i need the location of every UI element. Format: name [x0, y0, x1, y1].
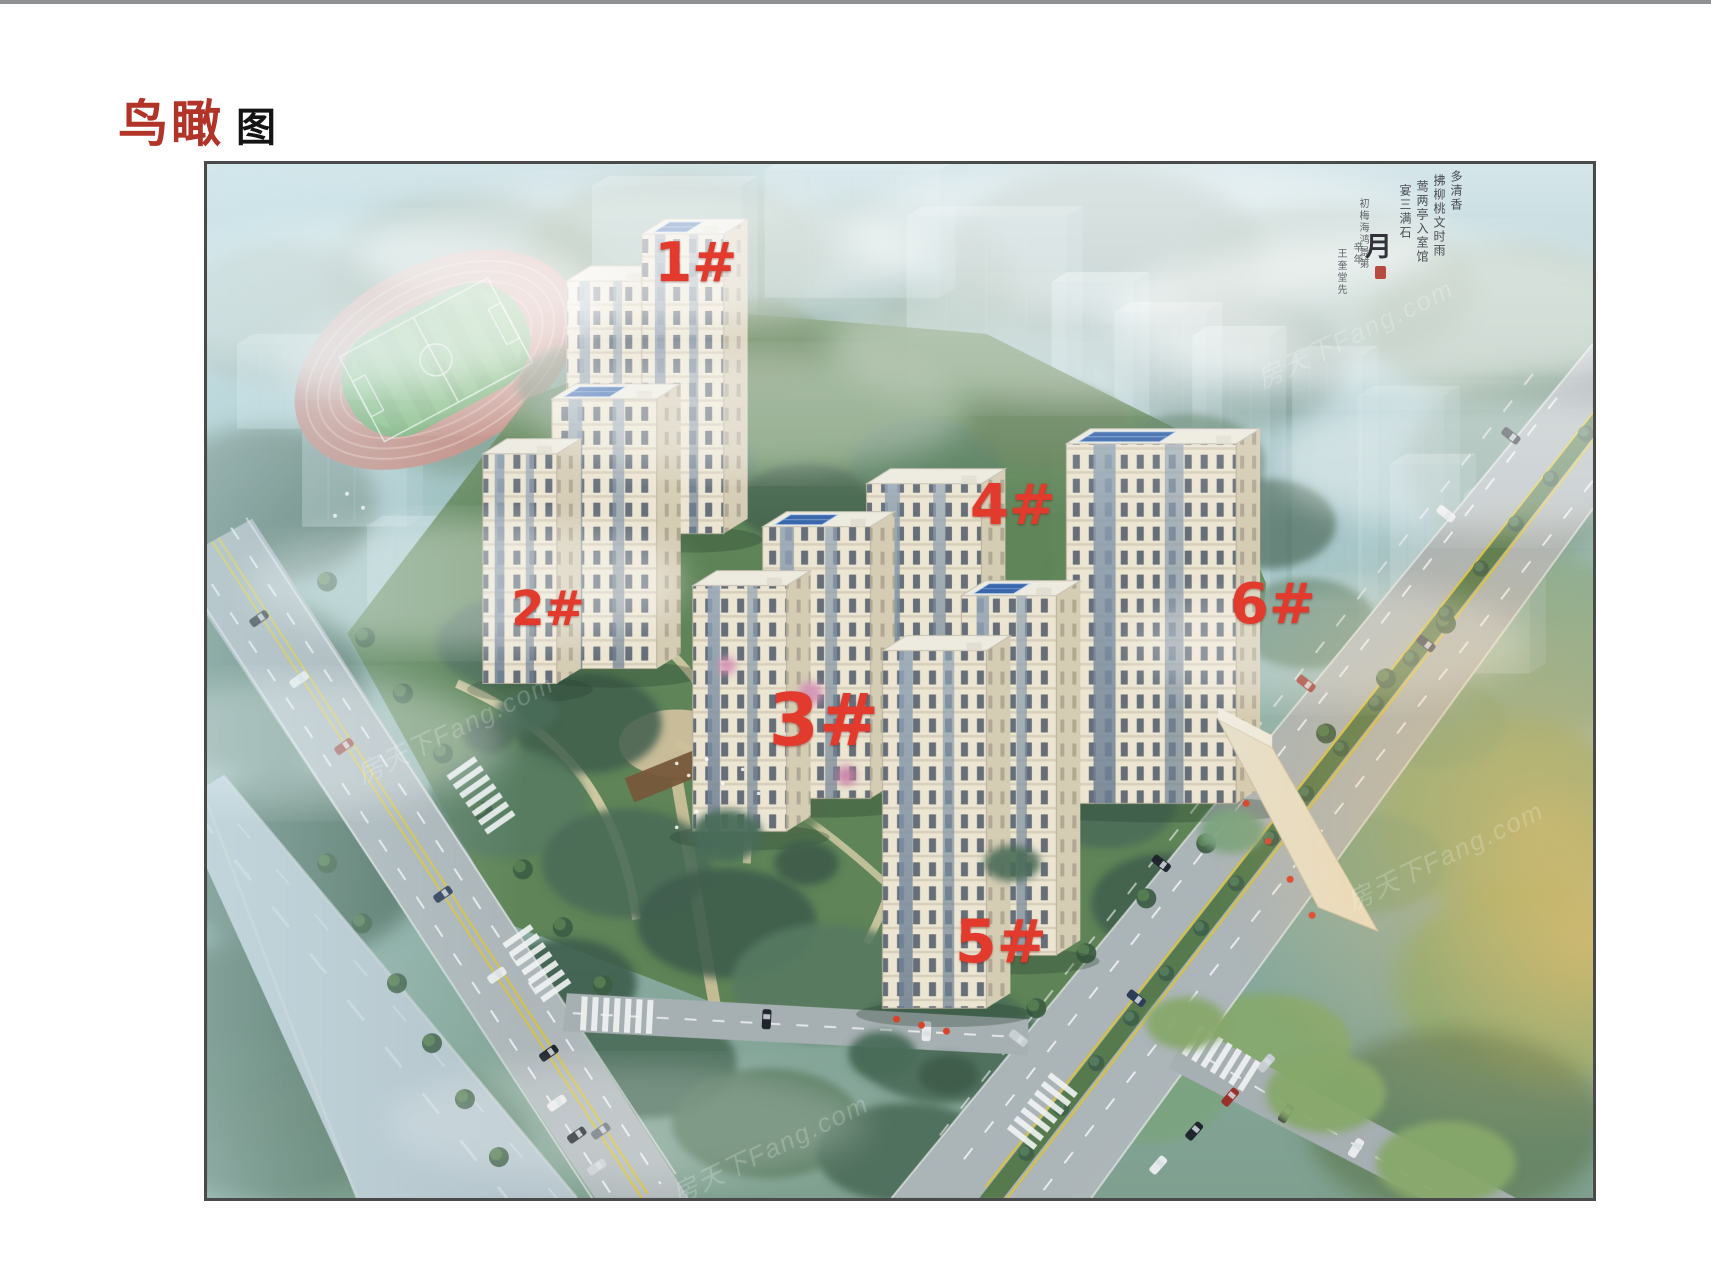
building-label-2: 2# [511, 585, 585, 633]
top-divider [0, 0, 1711, 4]
building-label-4: 4# [970, 478, 1056, 534]
aerial-rendering-figure: 1# 2# 3# 4# 5# 6# 多清香 拂柳桃文时雨 莺两亭入室馆 宴三满石… [204, 161, 1596, 1201]
page: { "page": { "title": { "primary": "鸟瞰", … [0, 0, 1711, 1280]
left-haze [207, 164, 527, 1198]
calligraphy-signature: 王奎堂先 [1335, 248, 1345, 296]
calligraphy-column-2: 拂柳桃文时雨 [1433, 174, 1445, 258]
building-label-5: 5# [955, 912, 1047, 972]
calligraphy-column-1: 多清香 [1450, 170, 1462, 212]
page-title-secondary: 图 [236, 95, 276, 153]
building-label-1: 1# [655, 236, 738, 290]
calligraphy-column-3: 莺两亭入室馆 [1416, 180, 1428, 264]
calligraphy-large-char: 月 [1362, 232, 1389, 261]
page-title-primary: 鸟瞰 [118, 84, 224, 156]
calligraphy-signature-top: 辛年 [1351, 242, 1361, 266]
building-label-6: 6# [1230, 577, 1316, 633]
building-label-3: 3# [769, 684, 879, 756]
calligraphy-column-4: 宴三满石 [1399, 184, 1411, 240]
page-title: 鸟瞰 图 [118, 84, 276, 156]
seal-stamp-icon [1375, 266, 1386, 279]
